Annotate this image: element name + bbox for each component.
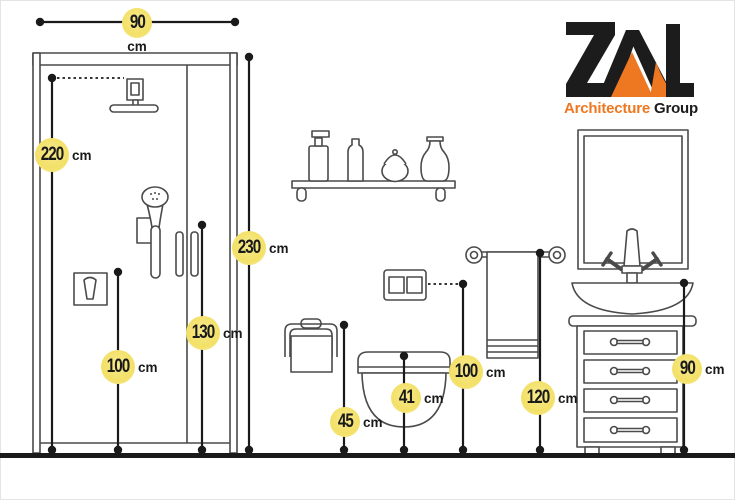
dim-bubble: 100 xyxy=(101,350,135,384)
zal-logo-mark-icon xyxy=(564,18,696,100)
shower-enclosure xyxy=(33,53,237,453)
flush-plate-icon xyxy=(384,270,426,300)
dim-label-enclosure-height: 230 cm xyxy=(232,231,289,265)
dim-bubble: 100 xyxy=(449,355,483,389)
logo-subtitle: ArchitectureGroup xyxy=(551,100,711,117)
dim-label-paper-holder-height: 45 cm xyxy=(330,407,383,437)
dim-bubble: 45 xyxy=(330,407,360,437)
vanity-cabinet xyxy=(569,316,696,454)
zal-logo: ZAL ArchitectureGroup xyxy=(551,14,711,124)
dim-label-mixer-height: 100 cm xyxy=(101,350,158,384)
dim-bubble: 120 xyxy=(521,381,555,415)
toiletry-bottles-icon xyxy=(309,131,449,182)
bathroom-dimensions-diagram: 90 cm 220 cm 230 cm 130 cm 100 cm 45 cm … xyxy=(0,0,735,500)
rain-shower-head-icon xyxy=(110,79,158,112)
wall-shelf xyxy=(292,181,455,201)
dim-label-shower-head-height: 220 cm xyxy=(35,138,92,172)
logo-architecture-text: Architecture xyxy=(564,100,650,117)
floor-line xyxy=(0,453,735,458)
dim-bubble: 220 xyxy=(35,138,69,172)
logo-group-text: Group xyxy=(654,100,698,117)
dim-bubble: 130 xyxy=(186,316,220,350)
dim-label-toilet-height: 41 cm xyxy=(391,383,444,413)
hand-shower-icon xyxy=(137,187,168,278)
dim-bubble: 90 xyxy=(672,354,702,384)
dim-bubble: 230 xyxy=(232,231,266,265)
dim-bubble: 41 xyxy=(391,383,421,413)
dim-label-vanity-height: 90 cm xyxy=(672,354,725,384)
shower-mixer-icon xyxy=(74,273,107,305)
dim-label-hand-shower-height: 130 cm xyxy=(186,316,243,350)
dim-label-flush-plate-height: 100 cm xyxy=(449,355,506,389)
dim-bubble: 90 xyxy=(122,8,152,38)
dim-label-towel-bar-height: 120 cm xyxy=(521,381,578,415)
dim-label-shower-width: 90 cm xyxy=(122,8,152,54)
toilet-paper-holder-icon xyxy=(285,319,337,372)
vessel-sink-icon xyxy=(572,283,693,314)
towel-rack-icon xyxy=(466,247,565,358)
